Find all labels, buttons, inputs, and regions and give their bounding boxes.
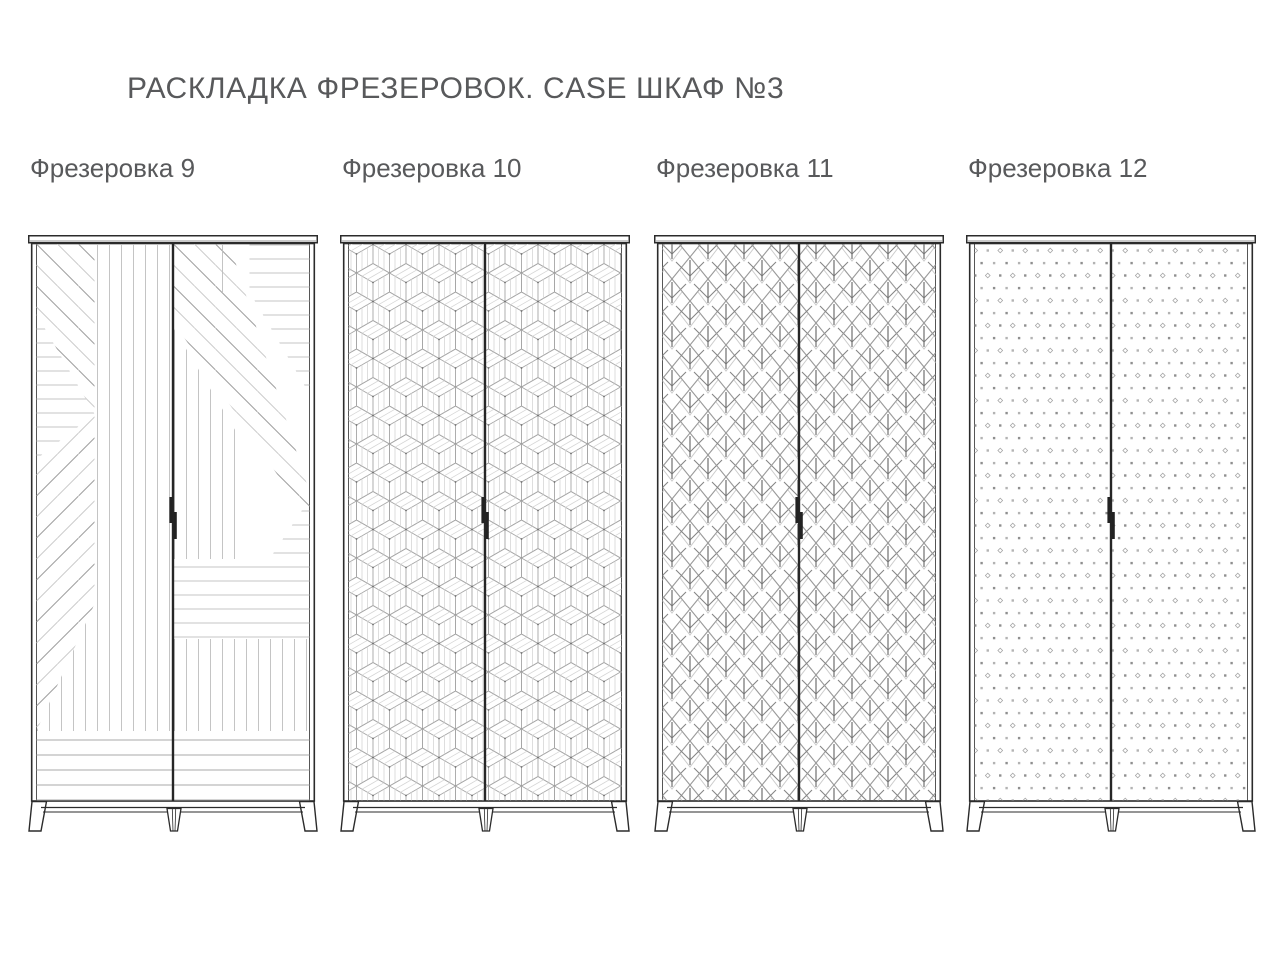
wardrobe-label: Фрезеровка 9 bbox=[30, 153, 195, 184]
page-title: РАСКЛАДКА ФРЕЗЕРОВОК. CASE ШКАФ №3 bbox=[127, 72, 784, 106]
wardrobe-drawing-12 bbox=[966, 235, 1256, 832]
wardrobe-unit-10: Фрезеровка 10 bbox=[340, 153, 631, 843]
wardrobe-unit-11: Фрезеровка 11 bbox=[654, 153, 945, 843]
wardrobe-drawing-9 bbox=[28, 235, 318, 832]
right-door-pattern bbox=[1112, 244, 1248, 801]
wardrobe-label: Фрезеровка 12 bbox=[968, 153, 1148, 184]
sheet: РАСКЛАДКА ФРЕЗЕРОВОК. CASE ШКАФ №3 bbox=[0, 0, 1281, 961]
wardrobe-label: Фрезеровка 10 bbox=[342, 153, 522, 184]
left-door-pattern bbox=[663, 244, 799, 801]
wardrobe-drawing-11 bbox=[654, 235, 944, 832]
left-door-pattern bbox=[349, 244, 485, 801]
wardrobe-drawing-10 bbox=[340, 235, 630, 832]
left-door-pattern bbox=[975, 244, 1111, 801]
left-door-pattern bbox=[37, 244, 173, 801]
right-door-pattern bbox=[800, 244, 936, 801]
right-door-pattern bbox=[486, 244, 622, 801]
wardrobe-unit-12: Фрезеровка 12 bbox=[966, 153, 1257, 843]
wardrobe-label: Фрезеровка 11 bbox=[656, 153, 834, 184]
wardrobe-unit-9: Фрезеровка 9 bbox=[28, 153, 319, 843]
